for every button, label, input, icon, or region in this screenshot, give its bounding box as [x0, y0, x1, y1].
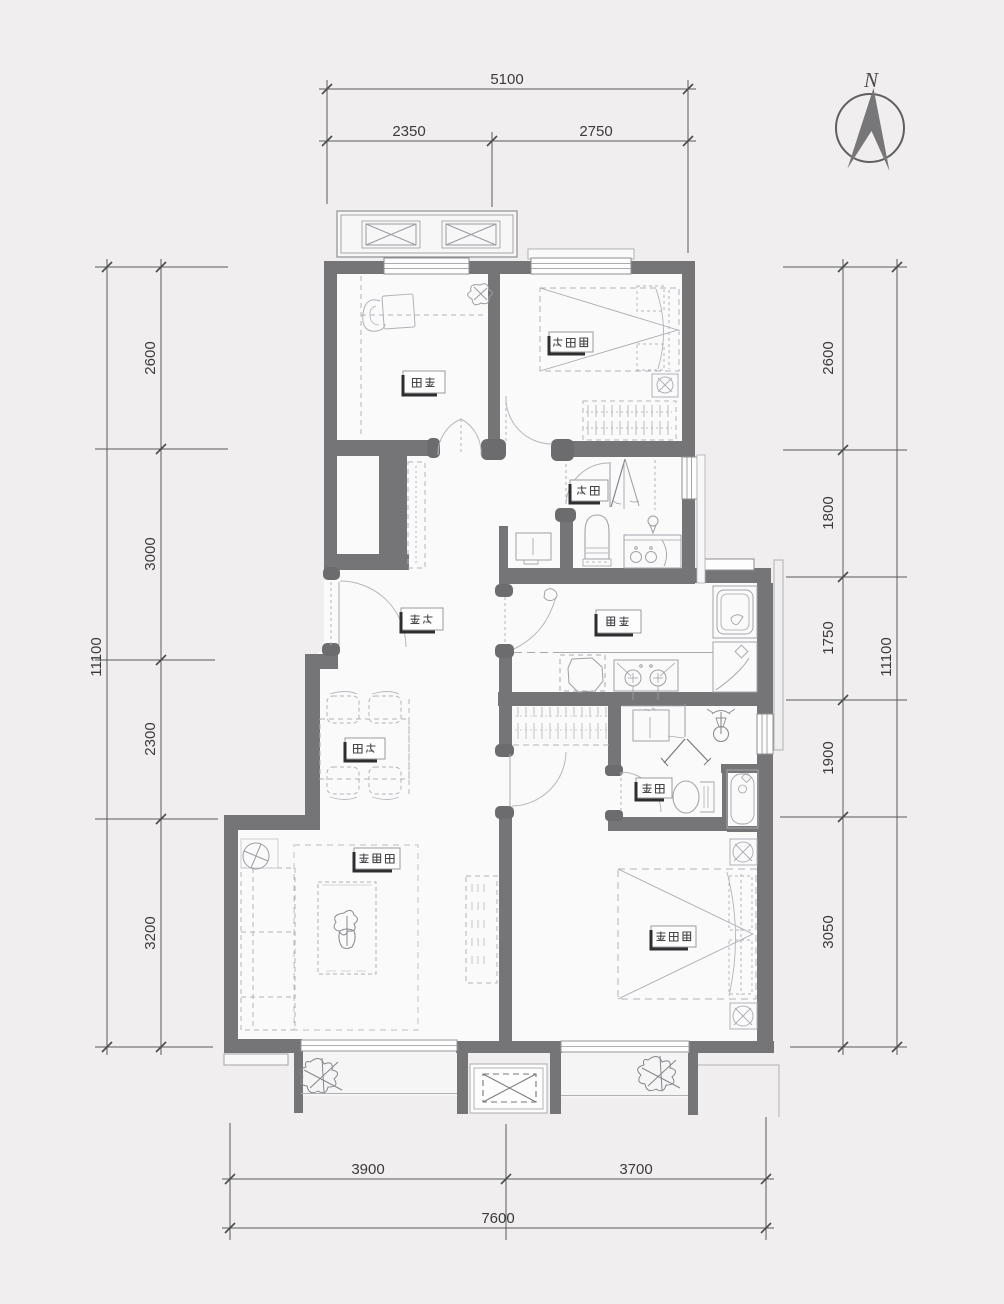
svg-text:11100: 11100 — [878, 637, 895, 677]
svg-text:N: N — [863, 68, 879, 92]
svg-text:3000: 3000 — [142, 537, 159, 570]
svg-text:2350: 2350 — [392, 123, 425, 140]
svg-text:2750: 2750 — [579, 123, 612, 140]
svg-text:2600: 2600 — [142, 341, 159, 374]
svg-text:3900: 3900 — [351, 1161, 384, 1178]
svg-text:3050: 3050 — [820, 915, 837, 948]
svg-text:2600: 2600 — [820, 341, 837, 374]
svg-text:2300: 2300 — [142, 722, 159, 755]
svg-text:3700: 3700 — [619, 1161, 652, 1178]
svg-text:3200: 3200 — [142, 916, 159, 949]
svg-text:11100: 11100 — [88, 637, 105, 677]
svg-text:5100: 5100 — [490, 71, 523, 88]
svg-text:1750: 1750 — [820, 621, 837, 654]
svg-text:1800: 1800 — [820, 496, 837, 529]
svg-text:1900: 1900 — [820, 741, 837, 774]
svg-text:7600: 7600 — [481, 1210, 514, 1227]
